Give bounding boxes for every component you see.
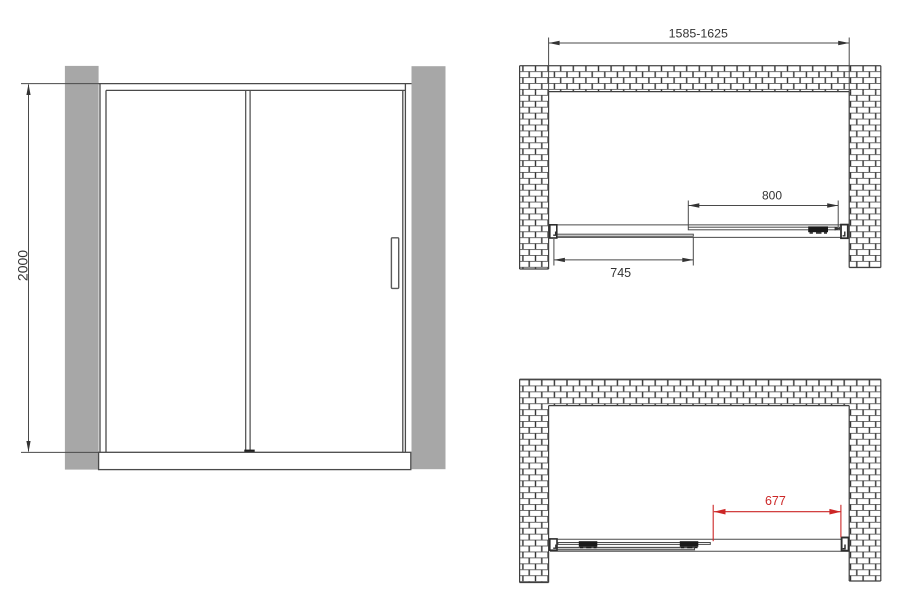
svg-text:1585-1625: 1585-1625 [669, 26, 728, 40]
svg-text:677: 677 [765, 494, 786, 508]
svg-text:800: 800 [762, 189, 782, 203]
svg-text:745: 745 [610, 266, 631, 280]
svg-text:2000: 2000 [15, 250, 31, 281]
